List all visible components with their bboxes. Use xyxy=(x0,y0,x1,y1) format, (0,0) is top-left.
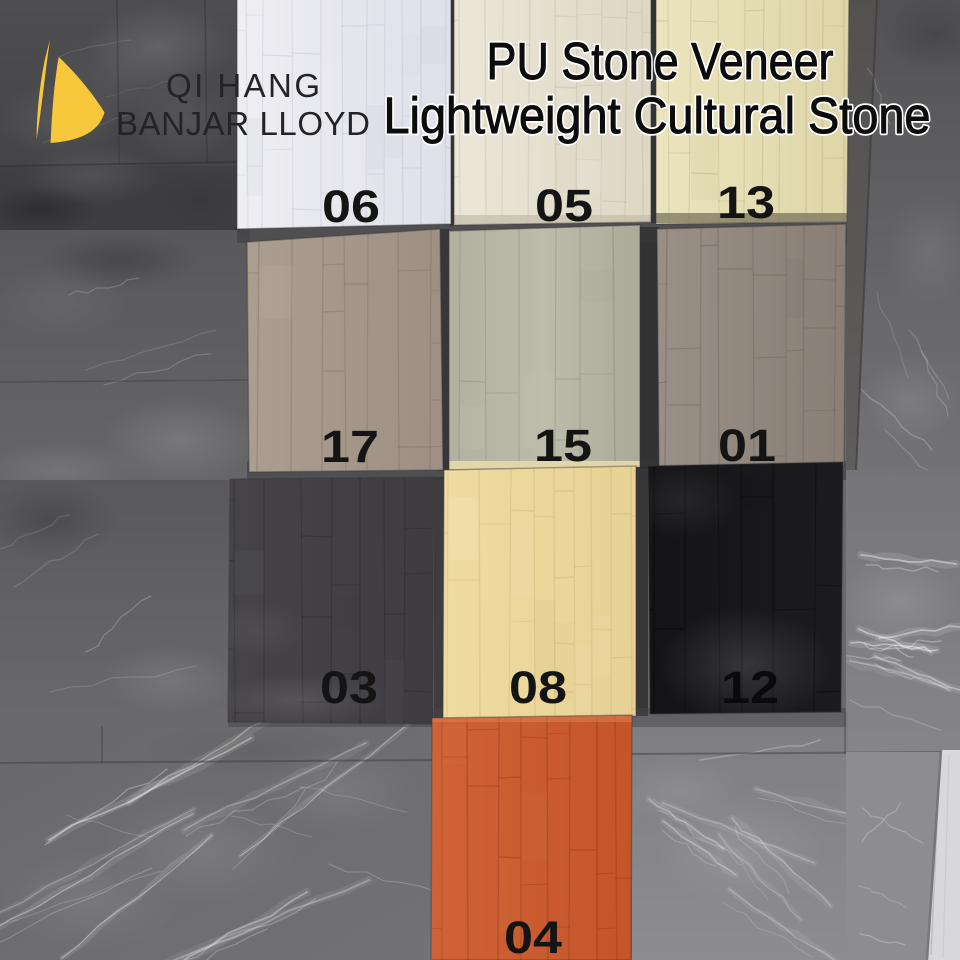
svg-text:13: 13 xyxy=(717,177,775,228)
svg-text:06: 06 xyxy=(322,181,380,232)
svg-text:12: 12 xyxy=(721,662,779,713)
svg-text:15: 15 xyxy=(534,420,592,471)
svg-text:05: 05 xyxy=(535,180,593,231)
svg-text:04: 04 xyxy=(504,912,562,960)
svg-text:17: 17 xyxy=(321,421,379,472)
svg-text:QI HANG: QI HANG xyxy=(166,67,320,104)
svg-text:Lightweight Cultural Stone: Lightweight Cultural Stone xyxy=(384,87,931,144)
svg-text:03: 03 xyxy=(320,662,378,713)
svg-text:BANJAR LLOYD: BANJAR LLOYD xyxy=(116,105,370,142)
svg-text:PU Stone Veneer: PU Stone Veneer xyxy=(487,33,834,91)
svg-text:08: 08 xyxy=(509,662,567,713)
